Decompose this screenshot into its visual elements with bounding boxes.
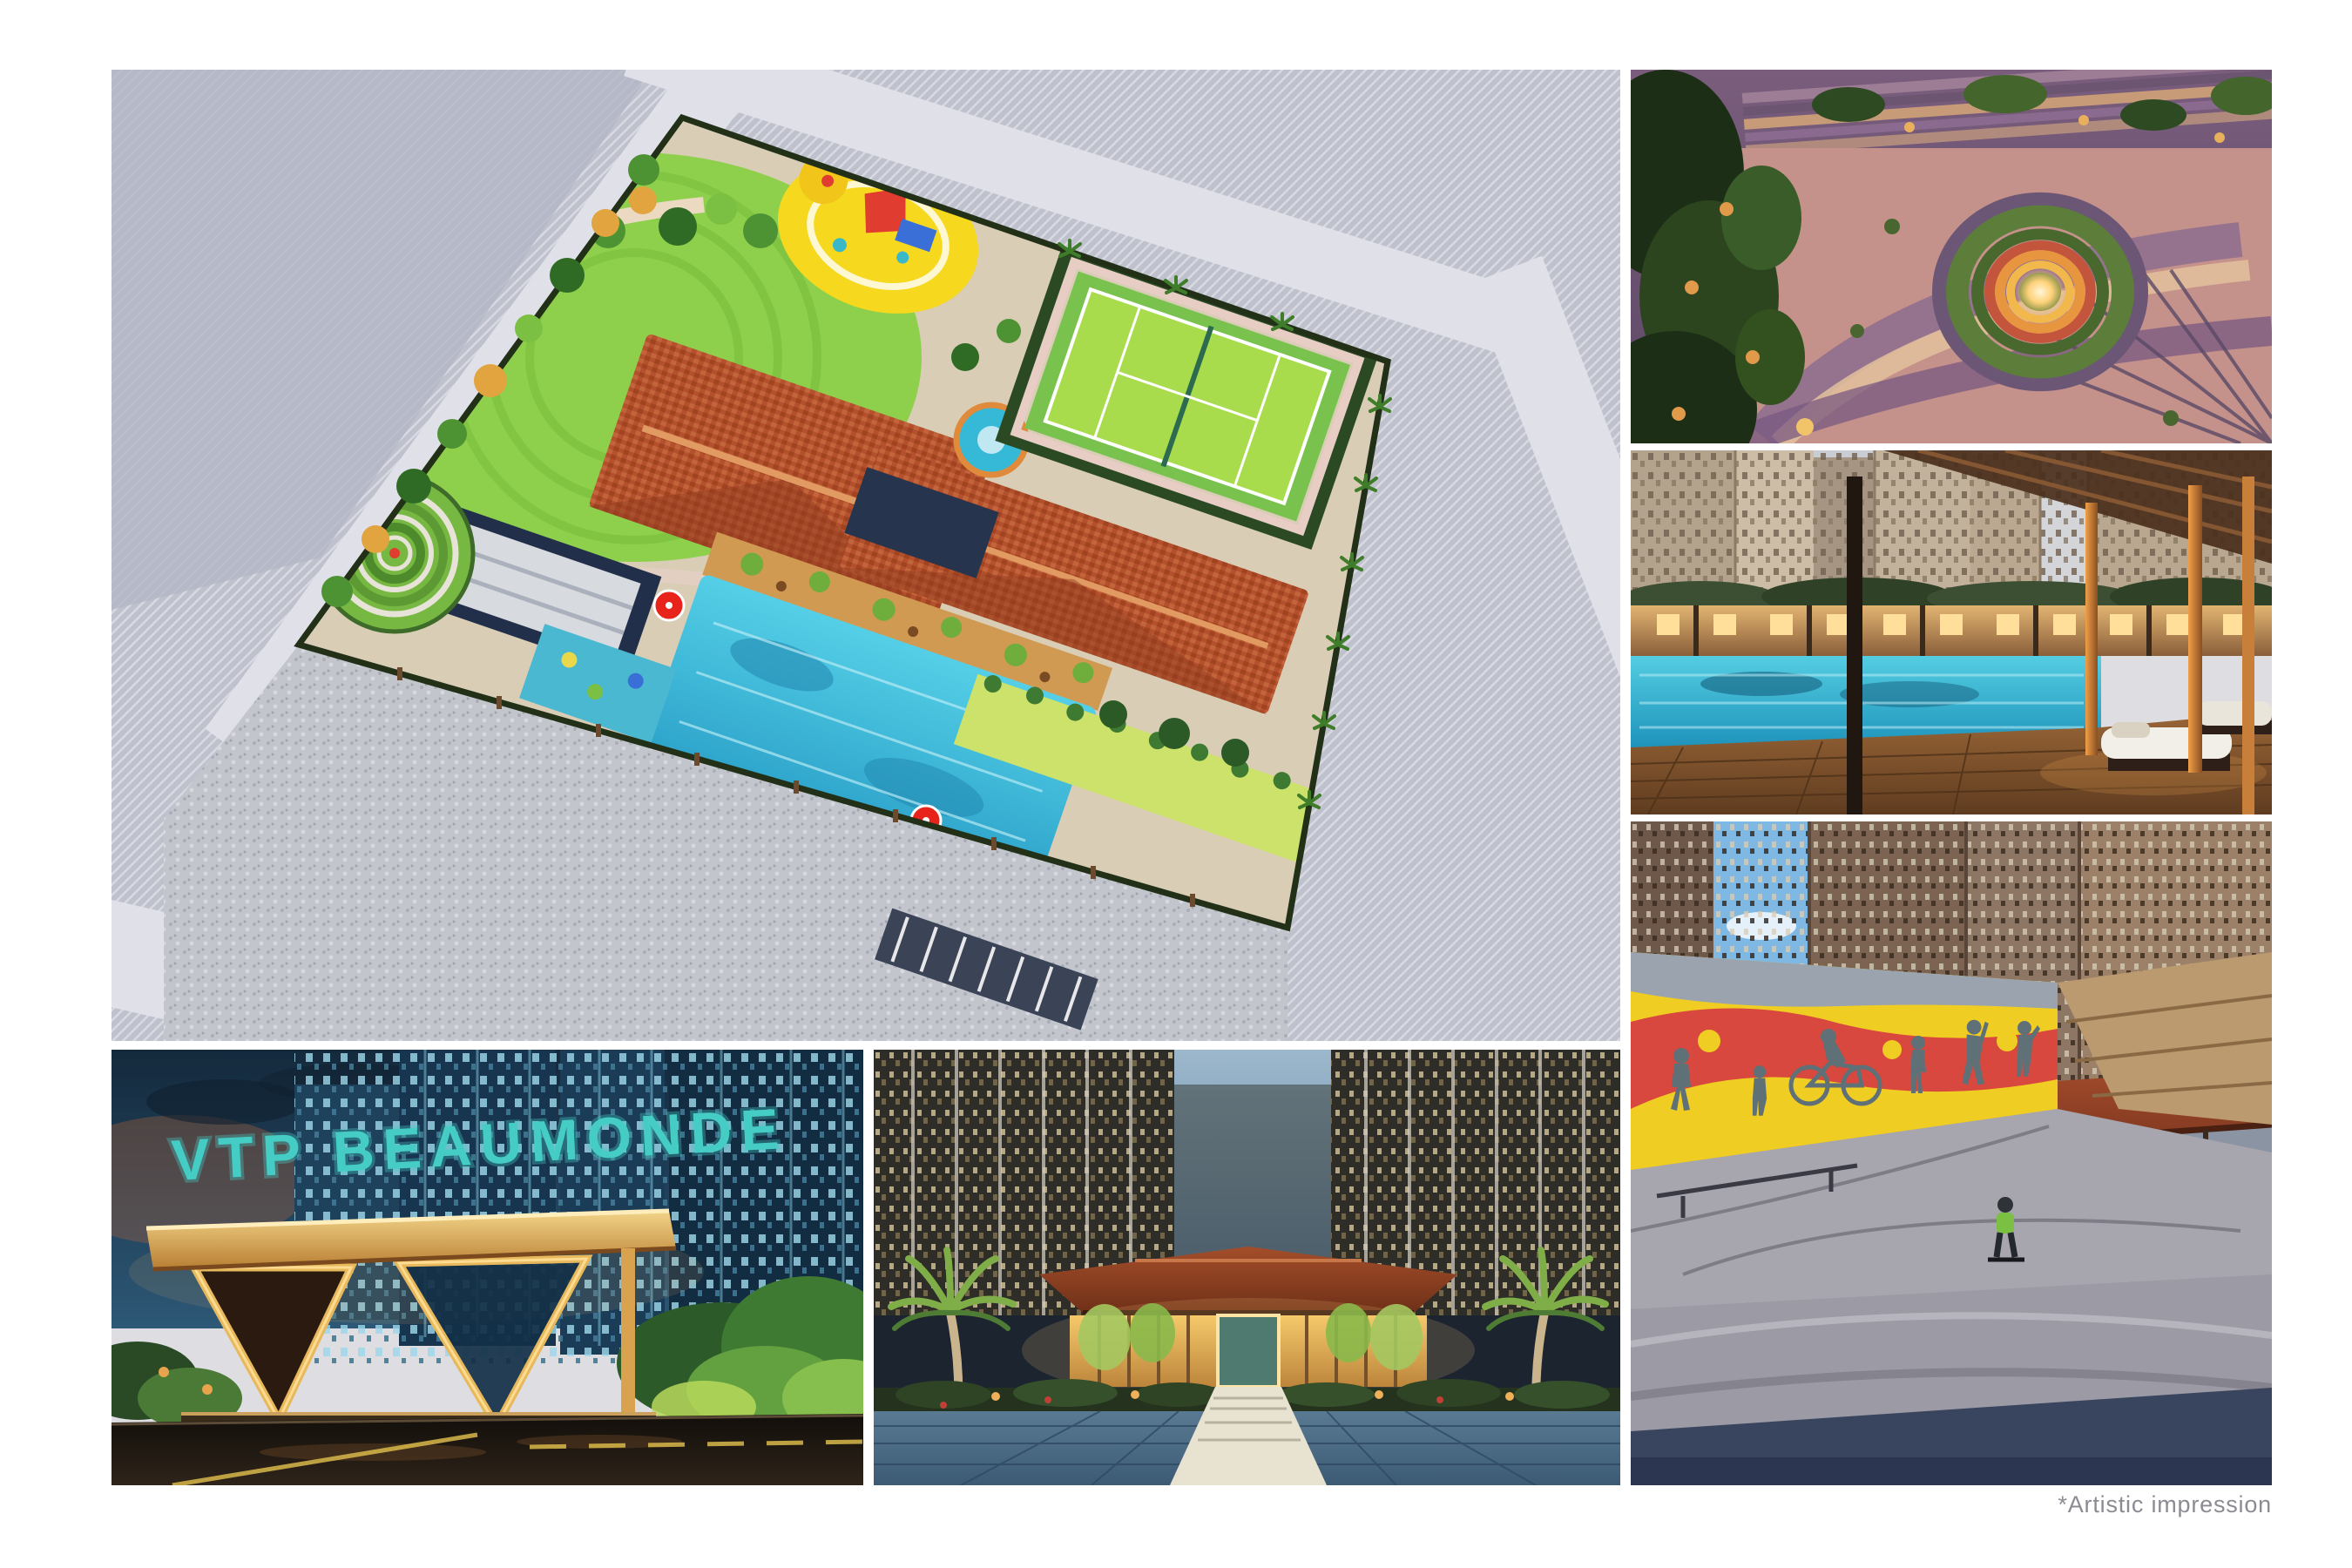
fountain-night-scene [1631,70,2272,443]
entrance-plaza-scene [874,1050,1620,1485]
masterplan-aerial-scene [112,70,1620,1041]
lit-tree [1078,1304,1131,1370]
gateway-night-image: VTP BEAUMONDE VTP BEAUMONDE [112,1050,863,1485]
entrance-plaza-image [874,1050,1620,1485]
artistic-impression-caption: *Artistic impression [1394,1491,2272,1518]
poolside-dusk-image [1631,450,2272,814]
caption-text: *Artistic impression [2058,1491,2272,1517]
gateway-night-scene: VTP BEAUMONDE VTP BEAUMONDE [112,1050,863,1485]
poolside-dusk-scene [1631,450,2272,814]
fountain-court-image [1631,70,2272,443]
gate-post [621,1248,635,1423]
skatepark-image [1631,821,2272,1485]
masterplan-aerial-image [112,70,1620,1041]
clubhouse-pavilion [1022,1247,1475,1402]
brochure-page: VTP BEAUMONDE VTP BEAUMONDE [0,0,2352,1568]
skatepark-scene [1631,821,2272,1485]
daybed [2197,701,2272,734]
